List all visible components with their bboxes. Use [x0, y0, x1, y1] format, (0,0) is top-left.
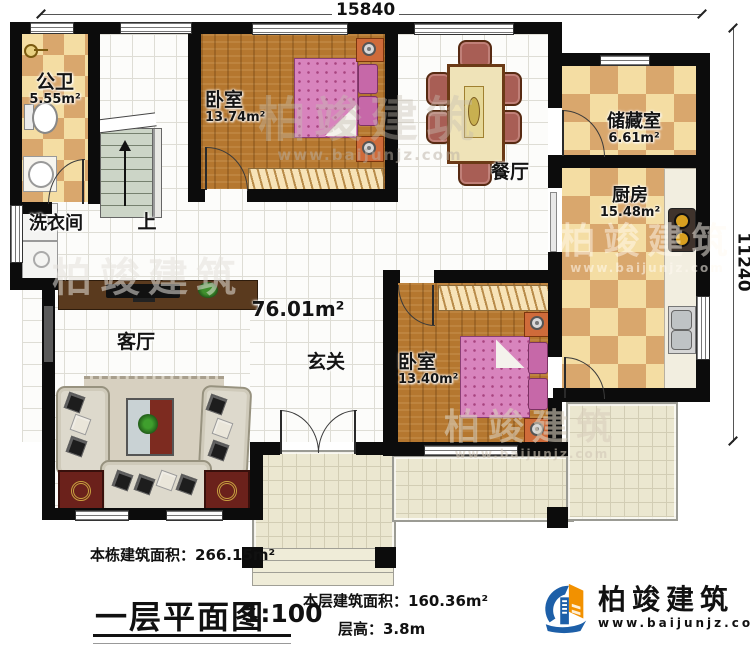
window — [414, 23, 514, 35]
floor-area-label: 76.01m² — [250, 298, 346, 320]
bedroom2-lamp — [530, 422, 544, 436]
room-label-foyer: 玄关 — [294, 352, 358, 373]
floor-plan-page: 公卫5.55m² 卧室13.74m² 餐厅 储藏室6.61m² 厨房15.48m… — [0, 0, 750, 646]
window — [166, 510, 223, 521]
window — [252, 23, 348, 35]
dimension-top-value: 15840 — [332, 0, 399, 20]
window — [424, 445, 518, 456]
logo-url: www.baijunjz.com — [598, 616, 750, 630]
room-label-stairs-up: 上 — [134, 212, 160, 233]
bedroom2-lamp — [530, 316, 544, 330]
wall — [88, 22, 100, 204]
kitchen-entry-door — [550, 192, 557, 252]
title-underline — [93, 634, 291, 644]
sink-basin — [671, 310, 692, 330]
end-table-medallion — [71, 481, 91, 501]
wall — [434, 270, 562, 283]
floor-height-text: 层高：3.8m — [338, 618, 425, 639]
bedroom1-pillow — [358, 96, 378, 126]
stove-burner — [674, 231, 690, 247]
kitchen-door-leaf — [564, 357, 566, 398]
wall — [383, 270, 400, 283]
bedroom2-pillow — [528, 378, 548, 410]
window-dark — [44, 306, 53, 362]
wall — [383, 270, 398, 455]
window — [30, 22, 74, 34]
porch-terrace — [252, 450, 396, 554]
washing-machine-door — [33, 251, 50, 268]
bedroom1-bed-fold — [318, 104, 356, 136]
shower-icon — [24, 44, 38, 58]
bedroom2-wardrobe — [438, 285, 552, 311]
terrace-column — [547, 507, 568, 528]
bedroom2-door-leaf — [432, 285, 434, 325]
window — [696, 296, 710, 360]
entrance-door-left-leaf — [280, 410, 282, 454]
room-label-bedroom2: 卧室13.40m² — [398, 352, 492, 388]
logo-name: 柏竣建筑 — [598, 586, 750, 614]
bedroom1-lamp — [362, 42, 376, 56]
bedroom1-lamp — [362, 141, 376, 155]
wall — [250, 442, 280, 455]
console-plant — [198, 282, 218, 298]
stair-arrow-line — [124, 150, 126, 206]
room-label-living: 客厅 — [104, 332, 168, 353]
bedroom2-pillow — [528, 342, 548, 374]
tv-stand — [133, 298, 155, 302]
stair-arrow-head — [119, 140, 131, 151]
wall — [188, 189, 205, 202]
wall — [247, 189, 398, 202]
storage-door-leaf — [562, 110, 564, 156]
wall — [188, 22, 201, 202]
bathroom-door-leaf — [82, 159, 84, 204]
room-label-storage: 储藏室6.61m² — [590, 112, 678, 147]
floor-area-text: 本层建筑面积：160.36m² — [303, 590, 488, 611]
terrace-right — [566, 402, 678, 521]
bedroom1-pillow — [358, 64, 378, 94]
building-area-text: 本栋建筑面积：266.15m² — [90, 544, 275, 565]
stove-burner — [674, 213, 690, 229]
wall — [696, 53, 710, 168]
bedroom1-door-leaf — [205, 147, 207, 190]
sink-basin — [671, 330, 692, 350]
window — [120, 22, 192, 34]
room-label-kitchen: 厨房15.48m² — [588, 186, 672, 221]
dimension-right-value: 11240 — [734, 228, 750, 295]
end-table-medallion — [217, 481, 237, 501]
bedroom2-bed-fold — [496, 336, 528, 368]
dining-centerpiece — [468, 97, 480, 126]
bathroom-sink-basin — [28, 161, 54, 188]
window — [75, 510, 129, 521]
wall — [385, 22, 398, 202]
wall — [548, 252, 562, 357]
company-logo: 柏竣建筑 www.baijunjz.com — [540, 576, 746, 640]
porch-column — [375, 547, 396, 568]
window — [600, 55, 650, 66]
room-label-laundry: 洗衣间 — [16, 214, 96, 234]
room-label-bedroom1: 卧室13.74m² — [205, 90, 297, 126]
logo-mark-icon — [540, 577, 592, 639]
entrance-door-right-leaf — [354, 410, 356, 454]
room-label-dining: 餐厅 — [478, 162, 542, 183]
tv — [106, 284, 180, 298]
table-plant — [138, 414, 158, 434]
wall — [696, 168, 710, 296]
plan-title: 一层平面图 — [95, 592, 265, 638]
porch-step — [252, 572, 394, 586]
room-label-bathroom: 公卫5.55m² — [22, 72, 88, 108]
stair-handrail — [152, 128, 162, 218]
shower-arm — [34, 49, 48, 51]
